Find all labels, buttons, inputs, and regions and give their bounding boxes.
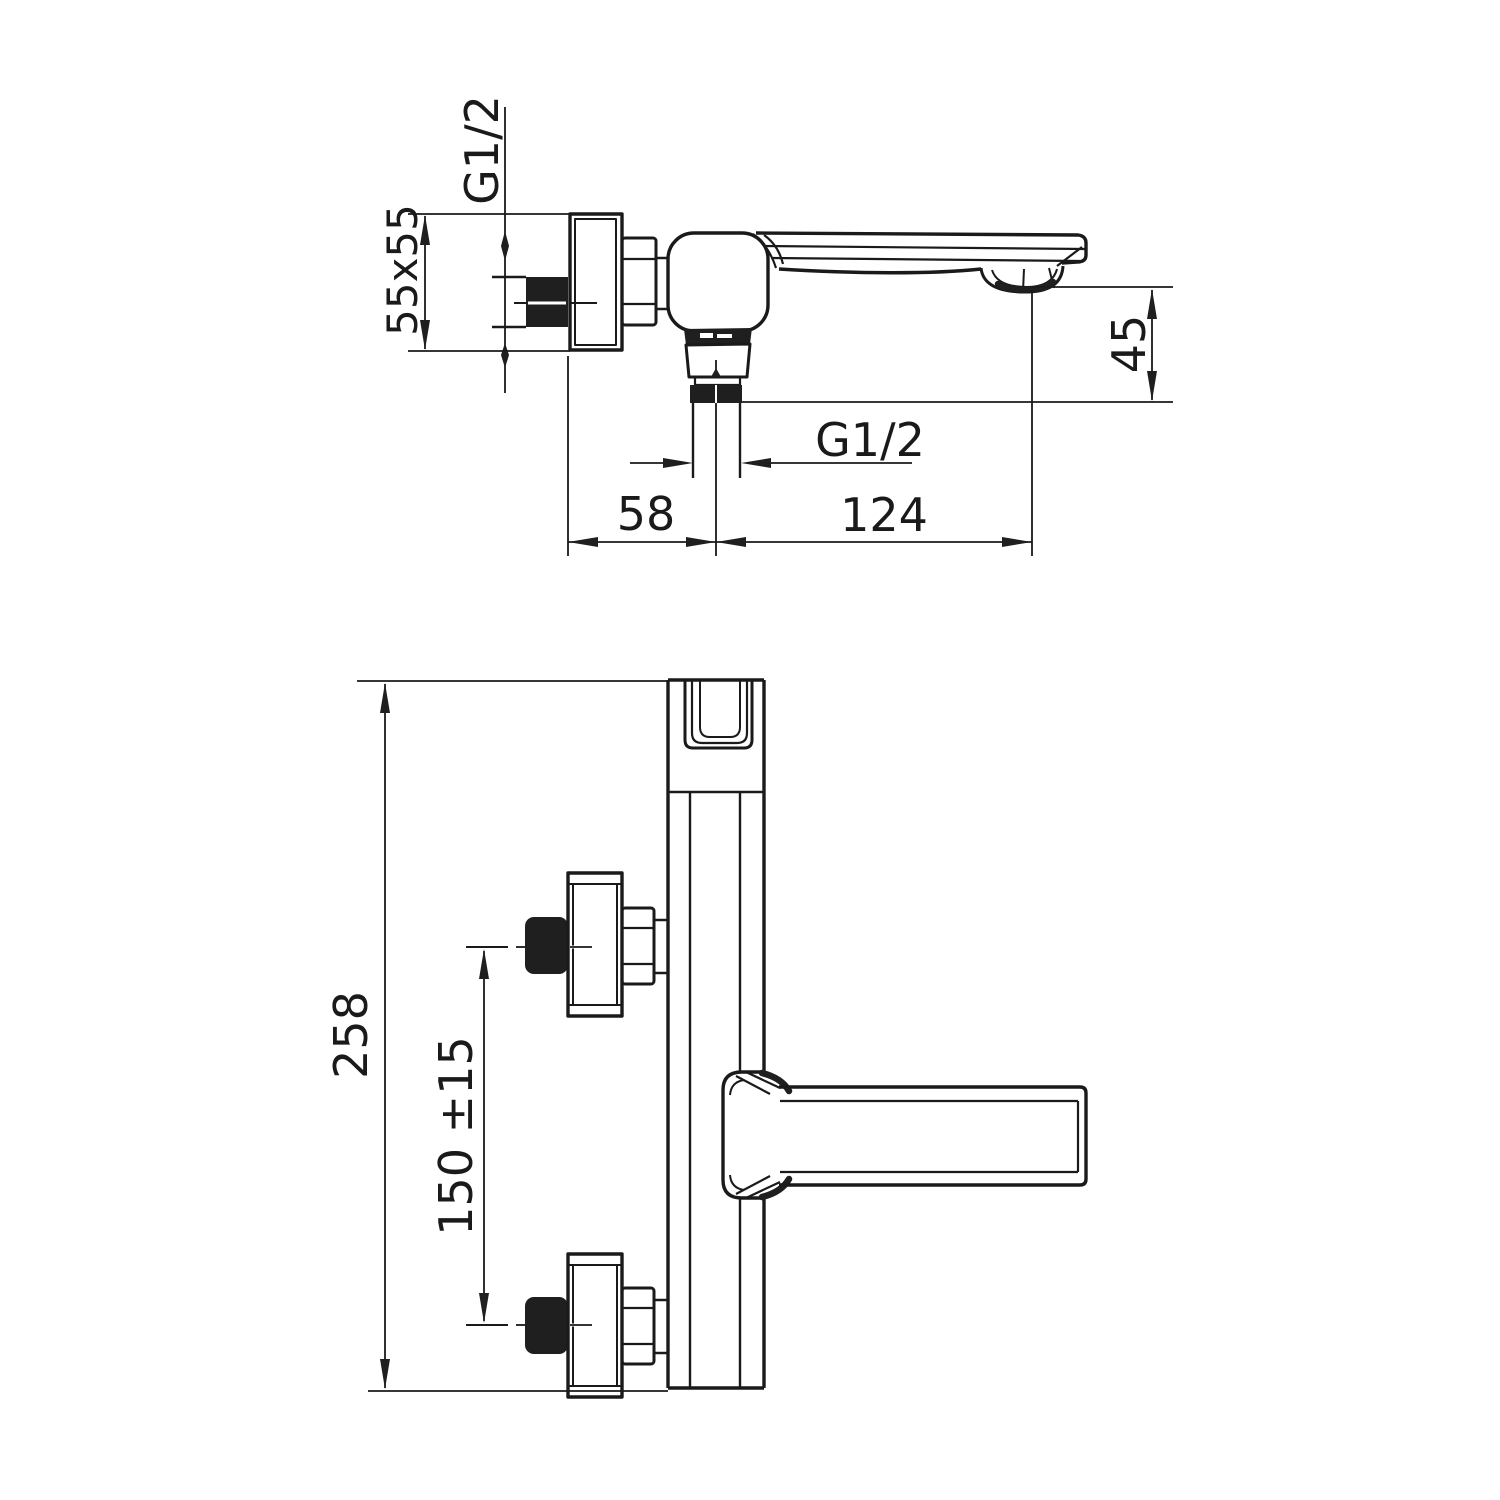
outlet-tail bbox=[690, 377, 742, 556]
arrow-right bbox=[686, 537, 716, 547]
hex-nut bbox=[622, 908, 654, 984]
junction-boss bbox=[723, 1072, 764, 1198]
indicator-notch bbox=[711, 368, 721, 377]
nut-step bbox=[654, 1300, 668, 1353]
spout-lever bbox=[756, 233, 1086, 292]
diverter-knob bbox=[685, 681, 752, 748]
overall-height-label: 258 bbox=[324, 991, 378, 1079]
connection-spacing-label: 150 ±15 bbox=[429, 1036, 483, 1236]
hex-nut-side bbox=[622, 238, 668, 325]
spout-front bbox=[723, 1072, 1086, 1198]
spout-drop-dimension: 45 bbox=[742, 287, 1173, 402]
body-column bbox=[668, 680, 764, 1388]
spout-drop-label: 45 bbox=[1102, 315, 1156, 374]
logo-mark-1 bbox=[700, 333, 713, 338]
arrow-down bbox=[1147, 371, 1157, 401]
wall-offset-label: 58 bbox=[617, 487, 676, 541]
front-view: 258 150 ±15 bbox=[324, 680, 1086, 1397]
axis-mark-lower bbox=[501, 343, 509, 368]
technical-drawing-page: G1/2 55x55 bbox=[0, 0, 1500, 1500]
lower-connection bbox=[516, 1254, 668, 1397]
wall-nipple bbox=[492, 277, 597, 327]
connection-spacing-dimension: 150 ±15 bbox=[429, 947, 508, 1325]
arrow-right bbox=[663, 458, 693, 468]
axis-mark-upper bbox=[501, 231, 509, 261]
outlet-thread-label: G1/2 bbox=[815, 413, 925, 467]
arrow-up bbox=[1147, 289, 1157, 319]
top-view: G1/2 55x55 bbox=[378, 95, 1173, 556]
logo-mark-2 bbox=[717, 334, 732, 338]
arrow-up bbox=[380, 683, 390, 713]
flange-plate bbox=[568, 873, 622, 1016]
arrow-left bbox=[741, 458, 771, 468]
reach-dimensions: 58 124 bbox=[568, 290, 1032, 556]
aerator bbox=[981, 266, 1063, 292]
arrow-right bbox=[1002, 537, 1032, 547]
spout-reach-label: 124 bbox=[840, 488, 928, 542]
rubber-seal bbox=[525, 1297, 568, 1354]
wall-thread-dimension: G1/2 bbox=[455, 95, 509, 393]
wall-flange-side bbox=[570, 214, 622, 350]
arrow-left bbox=[716, 537, 746, 547]
arrow-down bbox=[479, 1293, 489, 1323]
mixer-body-side bbox=[668, 233, 783, 377]
arrow-left bbox=[568, 537, 598, 547]
arrow-up bbox=[479, 949, 489, 979]
wall-thread-label: G1/2 bbox=[455, 95, 509, 205]
nut-step bbox=[654, 920, 668, 973]
faucet-dimension-drawing: G1/2 55x55 bbox=[0, 0, 1500, 1500]
arrow-down bbox=[380, 1359, 390, 1389]
upper-connection bbox=[516, 873, 668, 1016]
collar bbox=[656, 258, 668, 309]
hex-nut bbox=[622, 1288, 654, 1364]
outlet-thread-dimension: G1/2 bbox=[630, 413, 925, 468]
rubber-seal bbox=[525, 917, 568, 974]
flange-square-label: 55x55 bbox=[378, 204, 427, 336]
